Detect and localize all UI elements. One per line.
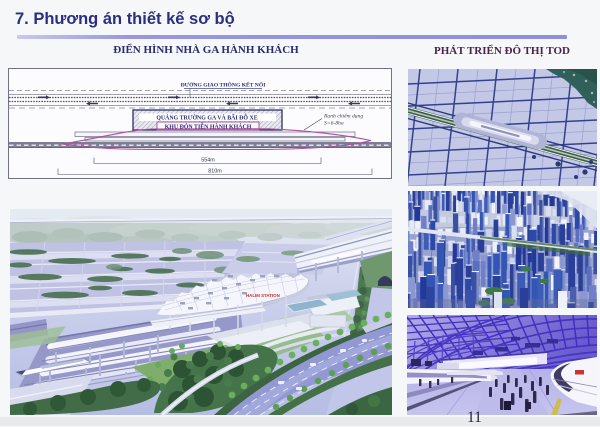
svg-text:554m: 554m	[201, 158, 215, 164]
svg-text:ĐƯỜNG GIAO THÔNG KẾT NỐI: ĐƯỜNG GIAO THÔNG KẾT NỐI	[181, 81, 266, 89]
svg-text:HALIM STATION: HALIM STATION	[246, 293, 280, 298]
svg-text:810m: 810m	[208, 169, 222, 175]
svg-text:Ranh chiếm dụng: Ranh chiếm dụng	[323, 113, 363, 120]
svg-text:QUẢNG TRƯỜNG GA VÀ BÃI ĐỖ XE: QUẢNG TRƯỜNG GA VÀ BÃI ĐỖ XE	[156, 113, 257, 121]
svg-text:S=6-8ha: S=6-8ha	[324, 121, 344, 127]
